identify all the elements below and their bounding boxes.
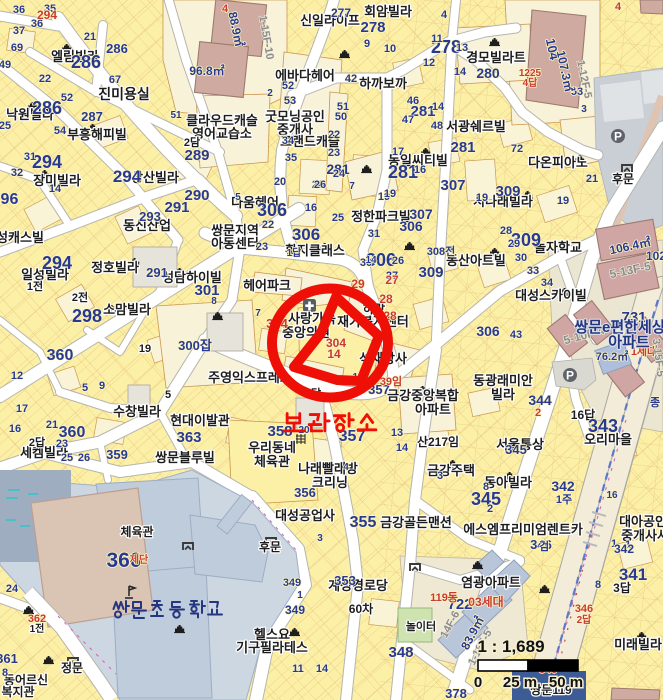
svg-text:9: 9 (99, 380, 105, 392)
svg-text:회암빌라: 회암빌라 (364, 4, 412, 19)
svg-text:50: 50 (335, 111, 347, 123)
svg-text:37: 37 (13, 25, 25, 37)
svg-text:309: 309 (418, 264, 443, 281)
svg-text:51: 51 (170, 110, 182, 121)
svg-text:아파트: 아파트 (415, 402, 451, 417)
svg-text:348: 348 (388, 644, 413, 661)
svg-text:나래빨래방: 나래빨래방 (298, 461, 358, 476)
svg-text:31: 31 (24, 151, 36, 163)
svg-text:17: 17 (392, 146, 404, 158)
svg-text:24: 24 (333, 168, 346, 180)
svg-text:체육관: 체육관 (254, 454, 290, 469)
svg-text:378: 378 (445, 686, 467, 700)
svg-text:22: 22 (328, 129, 340, 141)
svg-text:14: 14 (454, 66, 467, 78)
svg-text:300잡: 300잡 (178, 338, 212, 353)
svg-text:119동: 119동 (430, 591, 458, 604)
svg-text:298: 298 (72, 306, 102, 326)
svg-text:32: 32 (11, 167, 23, 179)
svg-text:현대이발관: 현대이발관 (170, 413, 230, 428)
svg-text:금강골든맨션: 금강골든맨션 (380, 515, 452, 530)
svg-text:하까보까: 하까보까 (359, 76, 407, 91)
svg-text:5: 5 (165, 389, 171, 401)
svg-text:수창빌라: 수창빌라 (113, 404, 161, 419)
svg-text:42: 42 (345, 73, 357, 85)
svg-text:286: 286 (32, 98, 62, 118)
svg-text:2답: 2답 (29, 435, 45, 449)
svg-text:1: 1 (297, 590, 303, 601)
svg-text:5: 5 (235, 192, 241, 203)
svg-text:14: 14 (432, 101, 445, 113)
svg-text:3: 3 (317, 533, 323, 544)
svg-text:아동센터: 아동센터 (211, 236, 259, 251)
svg-text:미래빌라: 미래빌라 (614, 637, 662, 652)
svg-text:P: P (566, 369, 574, 383)
svg-text:21: 21 (84, 31, 96, 43)
svg-text:1답: 1답 (287, 247, 303, 259)
svg-text:11: 11 (292, 663, 304, 675)
svg-text:14: 14 (365, 255, 377, 266)
svg-text:16: 16 (606, 490, 618, 501)
svg-text:281: 281 (450, 139, 475, 156)
svg-text:아파트: 아파트 (608, 334, 650, 351)
svg-text:13: 13 (391, 427, 403, 439)
svg-text:체육관: 체육관 (120, 524, 153, 539)
svg-text:16: 16 (9, 423, 21, 435)
svg-text:341: 341 (619, 565, 647, 584)
svg-text:277: 277 (331, 6, 351, 20)
svg-text:307: 307 (440, 177, 465, 194)
svg-text:03세대: 03세대 (468, 594, 503, 609)
svg-text:22: 22 (262, 219, 274, 231)
svg-text:14: 14 (396, 442, 409, 454)
svg-text:12: 12 (423, 57, 435, 69)
svg-text:소맘빌라: 소맘빌라 (103, 302, 151, 317)
svg-text:53: 53 (284, 95, 296, 107)
svg-text:7: 7 (255, 308, 261, 319)
svg-text:부흥해피빌: 부흥해피빌 (67, 127, 127, 142)
svg-text:종: 종 (650, 396, 660, 409)
svg-text:후문: 후문 (259, 539, 281, 554)
svg-text:294: 294 (113, 167, 142, 186)
svg-text:355: 355 (350, 514, 377, 531)
svg-text:52: 52 (282, 80, 294, 92)
svg-text:19: 19 (476, 192, 488, 204)
svg-text:12: 12 (11, 370, 23, 382)
svg-text:11: 11 (431, 33, 443, 45)
svg-text:20: 20 (274, 176, 286, 188)
svg-text:345: 345 (505, 442, 527, 457)
svg-text:286: 286 (71, 52, 101, 72)
svg-text:정호빌라: 정호빌라 (91, 260, 139, 275)
svg-text:9: 9 (364, 38, 370, 50)
svg-text:291: 291 (146, 265, 168, 280)
svg-text:289: 289 (184, 147, 209, 164)
svg-text:검: 검 (539, 540, 549, 553)
svg-text:에스엠프리미엄렌트카: 에스엠프리미엄렌트카 (463, 522, 583, 537)
svg-text:다온피아노: 다온피아노 (528, 155, 588, 170)
svg-text:크리닝: 크리닝 (312, 475, 348, 490)
svg-text:금강중앙복합: 금강중앙복합 (387, 388, 459, 403)
svg-text:21: 21 (586, 173, 598, 185)
svg-text:280: 280 (476, 65, 500, 81)
svg-text:359: 359 (106, 447, 128, 462)
svg-text:33: 33 (527, 265, 539, 277)
svg-text:염광아파트: 염광아파트 (461, 575, 521, 590)
svg-text:54: 54 (54, 125, 67, 137)
svg-text:28: 28 (379, 292, 393, 306)
svg-text:43: 43 (510, 329, 522, 341)
svg-text:291: 291 (164, 199, 189, 216)
svg-text:306: 306 (476, 323, 500, 339)
svg-text:306: 306 (292, 225, 320, 244)
svg-text:4: 4 (343, 462, 349, 473)
svg-text:25: 25 (332, 212, 344, 224)
svg-text:356: 356 (294, 485, 316, 500)
svg-text:346: 346 (575, 603, 593, 615)
svg-text:31: 31 (368, 228, 380, 240)
svg-text:쌍문블루빌: 쌍문블루빌 (155, 450, 215, 465)
svg-text:29: 29 (508, 238, 520, 250)
svg-text:296: 296 (0, 191, 18, 208)
svg-text:344: 344 (528, 392, 552, 408)
svg-text:342: 342 (551, 478, 575, 494)
svg-text:52: 52 (61, 92, 73, 104)
svg-text:8: 8 (483, 481, 489, 493)
svg-text:353: 353 (334, 573, 356, 588)
svg-text:5: 5 (82, 382, 88, 394)
svg-text:342: 342 (614, 542, 634, 556)
svg-text:23: 23 (328, 147, 340, 159)
svg-text:72: 72 (511, 143, 523, 155)
svg-text:69: 69 (11, 42, 23, 54)
svg-text:21: 21 (46, 419, 58, 431)
svg-text:35: 35 (285, 152, 297, 164)
svg-text:23: 23 (256, 241, 268, 253)
svg-text:360: 360 (47, 347, 74, 364)
svg-text:헤어파크: 헤어파크 (243, 278, 291, 293)
svg-text:진미용실: 진미용실 (98, 86, 150, 102)
svg-text:27: 27 (385, 273, 399, 287)
svg-text:309: 309 (495, 183, 520, 200)
svg-text:19: 19 (384, 188, 396, 200)
svg-text:2: 2 (267, 88, 273, 99)
svg-text:2: 2 (535, 407, 541, 419)
svg-text:349: 349 (285, 603, 305, 617)
svg-text:362: 362 (28, 613, 46, 625)
svg-text:19: 19 (139, 343, 151, 355)
svg-text:성캐스빌: 성캐스빌 (0, 230, 44, 245)
svg-text:1전: 1전 (27, 279, 43, 293)
svg-text:294: 294 (32, 152, 62, 172)
svg-text:47: 47 (402, 114, 414, 126)
svg-text:8: 8 (2, 667, 8, 679)
svg-text:4답: 4답 (523, 77, 539, 89)
svg-text:4: 4 (615, 1, 622, 13)
svg-text:308전: 308전 (427, 244, 455, 258)
svg-text:7: 7 (349, 181, 355, 192)
svg-text:293: 293 (139, 209, 161, 224)
svg-text:4: 4 (441, 9, 448, 21)
svg-text:36: 36 (13, 4, 25, 16)
svg-text:제단: 제단 (130, 553, 149, 566)
svg-text:서광쉐르빌: 서광쉐르빌 (446, 119, 506, 134)
svg-text:10: 10 (384, 43, 396, 55)
svg-text:50 m: 50 m (549, 674, 583, 691)
svg-text:금강주택: 금강주택 (427, 463, 475, 478)
svg-text:24: 24 (6, 583, 19, 595)
svg-text:361: 361 (0, 651, 18, 666)
svg-text:46: 46 (407, 95, 419, 107)
svg-text:60차: 60차 (349, 601, 373, 616)
svg-text:13: 13 (456, 42, 468, 54)
svg-text:동아빌라: 동아빌라 (484, 475, 532, 490)
svg-text:14: 14 (327, 347, 341, 361)
svg-text:67: 67 (109, 74, 121, 86)
svg-text:286: 286 (106, 41, 128, 56)
svg-text:22: 22 (39, 73, 51, 85)
svg-text:28: 28 (500, 225, 512, 237)
svg-text:후문: 후문 (612, 171, 634, 186)
svg-text:대성스카이빌: 대성스카이빌 (515, 288, 587, 303)
svg-text:8: 8 (211, 296, 217, 307)
svg-text:76.2㎡: 76.2㎡ (596, 349, 628, 363)
svg-text:2전: 2전 (72, 290, 88, 304)
svg-text:14: 14 (49, 183, 62, 195)
svg-text:306: 306 (399, 218, 423, 234)
svg-text:26: 26 (78, 452, 90, 464)
svg-text:25: 25 (0, 120, 11, 132)
svg-text:8: 8 (595, 579, 601, 591)
svg-text:287: 287 (81, 109, 103, 124)
svg-text:26: 26 (392, 255, 404, 267)
svg-text:3: 3 (581, 104, 587, 115)
svg-text:278: 278 (360, 19, 385, 36)
svg-text:기구필라테스: 기구필라테스 (236, 640, 308, 655)
svg-text:25: 25 (61, 452, 73, 464)
svg-text:34: 34 (541, 277, 554, 289)
svg-text:26: 26 (314, 179, 326, 191)
svg-text:25 m: 25 m (503, 674, 537, 691)
svg-text:19: 19 (557, 195, 569, 207)
svg-text:17: 17 (16, 403, 28, 415)
svg-text:16: 16 (414, 164, 426, 176)
svg-text:대성공업사: 대성공업사 (275, 508, 335, 523)
svg-text:39임: 39임 (380, 375, 402, 388)
svg-text:343: 343 (588, 416, 618, 436)
svg-text:동광래미안: 동광래미안 (473, 373, 533, 388)
svg-text:1 : 1,689: 1 : 1,689 (477, 637, 544, 656)
svg-text:1주: 1주 (556, 493, 572, 506)
svg-text:49: 49 (0, 59, 11, 71)
svg-text:3: 3 (437, 470, 443, 482)
svg-text:363: 363 (176, 429, 201, 446)
svg-text:우리동네: 우리동네 (248, 440, 296, 455)
svg-text:놀이터: 놀이터 (406, 619, 436, 633)
svg-text:294: 294 (37, 8, 57, 22)
svg-text:349: 349 (283, 577, 301, 589)
svg-text:306: 306 (257, 200, 287, 220)
svg-text:놀자학교: 놀자학교 (534, 240, 582, 255)
svg-text:빌라: 빌라 (491, 387, 515, 402)
svg-text:경모빌라트: 경모빌라트 (466, 50, 526, 65)
svg-text:산217임: 산217임 (417, 434, 459, 449)
svg-text:대아공인: 대아공인 (619, 514, 663, 529)
svg-text:영어교습소: 영어교습소 (192, 126, 252, 141)
svg-text:2: 2 (487, 503, 493, 515)
svg-text:14: 14 (316, 663, 329, 675)
svg-text:30: 30 (515, 252, 527, 264)
svg-text:48: 48 (431, 120, 443, 132)
svg-text:2답: 2답 (577, 614, 593, 626)
svg-text:23: 23 (56, 438, 68, 450)
svg-text:96.8㎡: 96.8㎡ (189, 63, 224, 78)
svg-text:복지관: 복지관 (1, 684, 34, 699)
svg-text:0: 0 (474, 674, 482, 691)
svg-text:16: 16 (305, 202, 317, 214)
svg-text:P: P (614, 130, 622, 144)
svg-text:34: 34 (282, 135, 295, 147)
svg-text:294: 294 (42, 253, 72, 273)
svg-text:정문: 정문 (61, 660, 83, 675)
